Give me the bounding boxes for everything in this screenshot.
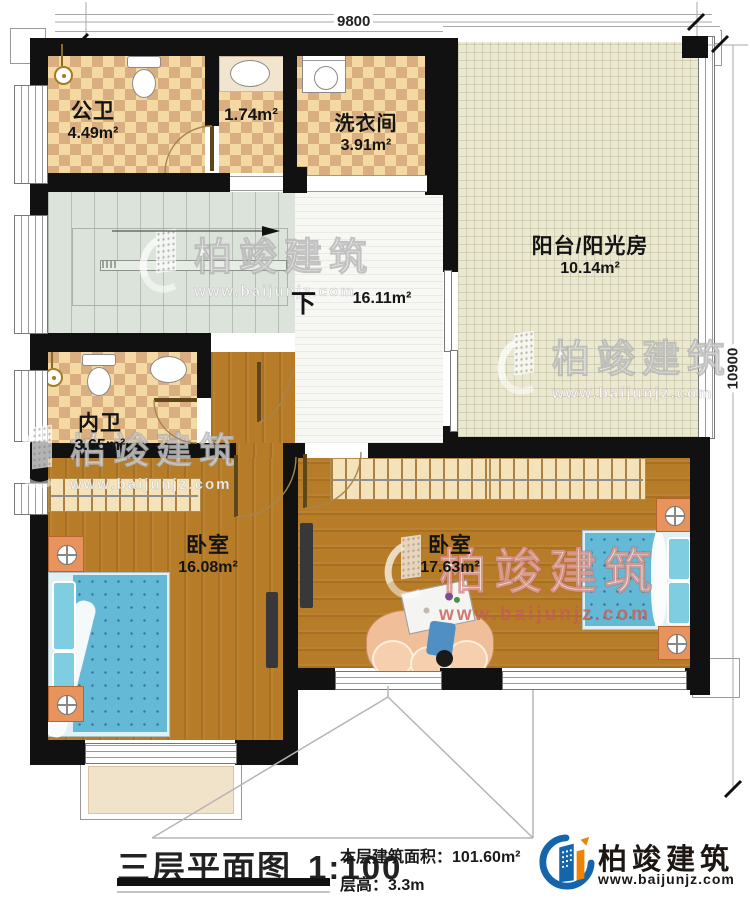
room-label-public-bath: 公卫4.49m² [33, 100, 153, 144]
nightstand [658, 626, 694, 660]
laundry-sliding-door [307, 175, 427, 192]
room-label-bedroom-right: 卧室17.63m² [390, 534, 510, 578]
wall-column [682, 36, 708, 58]
toilet-icon [132, 69, 156, 98]
person-head [436, 650, 453, 667]
floor-height-value: 3.3m [388, 877, 424, 894]
brand-logo-icon [537, 831, 595, 893]
wall [368, 443, 443, 458]
room-label-hall: 16.11m² [342, 290, 422, 309]
floor-area-label: 本层建筑面积： [340, 849, 452, 866]
pillow [667, 581, 691, 625]
room-label-bedroom-left: 卧室16.08m² [148, 534, 268, 578]
window [14, 483, 48, 515]
toilet-icon [87, 367, 111, 396]
shower-icon [54, 66, 73, 85]
room-label-laundry: 洗衣间3.91m² [308, 113, 424, 155]
room-label-ensuite-bath: 内卫3.65m² [40, 412, 160, 456]
washing-machine-icon [302, 53, 346, 93]
stair-direction-label: 下 [291, 284, 316, 320]
pillow [667, 537, 691, 581]
wall [283, 167, 307, 193]
wall [235, 740, 298, 765]
washer-drum [314, 66, 338, 90]
room-label-balcony: 阳台/阳光房10.14m² [488, 235, 692, 279]
dimension-right: 10900 [700, 332, 750, 404]
tv [300, 523, 313, 608]
balcony-sliding-door-panel [444, 270, 452, 352]
floor-corridor-opening [236, 443, 283, 458]
floor-plan: 柏竣建筑www.baijunjz.com 柏竣建筑www.baijunjz.co… [0, 0, 750, 902]
toilet-icon [82, 354, 116, 366]
wardrobe [330, 458, 646, 500]
floor-area-value: 101.60m² [452, 849, 521, 866]
sink-icon [230, 60, 270, 87]
nightstand [656, 498, 692, 532]
floor-height-row: 层高：3.3m [340, 871, 424, 895]
wall [685, 668, 710, 690]
window [85, 743, 237, 764]
wall [197, 345, 211, 398]
wall [30, 38, 458, 56]
bed [582, 530, 694, 630]
nightstand [48, 536, 84, 572]
tv [266, 592, 278, 668]
wall [30, 740, 85, 765]
balcony-sliding-door-panel [450, 350, 458, 432]
wall [440, 668, 502, 690]
wall [443, 195, 458, 272]
wall [30, 333, 211, 352]
washer-panel [303, 60, 345, 61]
floor-hall [295, 192, 443, 443]
wardrobe [48, 478, 201, 512]
wall [443, 437, 710, 458]
door-threshold [230, 176, 283, 191]
wall [690, 443, 710, 695]
wall [283, 443, 298, 740]
dimension-top: 9800 [334, 13, 373, 30]
window [335, 671, 442, 690]
brand-url: www.baijunjz.com [598, 871, 735, 887]
toilet-icon [127, 56, 161, 68]
pillow [52, 581, 76, 651]
floor-area-row: 本层建筑面积：101.60m² [340, 843, 521, 867]
title-underline-thin [117, 891, 330, 893]
window [14, 215, 48, 334]
floor-height-label: 层高： [340, 877, 388, 894]
wall [297, 668, 335, 690]
wall [30, 173, 230, 192]
window [502, 671, 687, 690]
room-label-wc: 1.74m² [212, 105, 290, 125]
wall [425, 56, 458, 195]
stair-handrail [100, 260, 287, 271]
sink-icon [150, 356, 187, 383]
bay-window-sill [88, 766, 234, 814]
title-underline [117, 878, 330, 886]
nightstand [48, 686, 84, 722]
